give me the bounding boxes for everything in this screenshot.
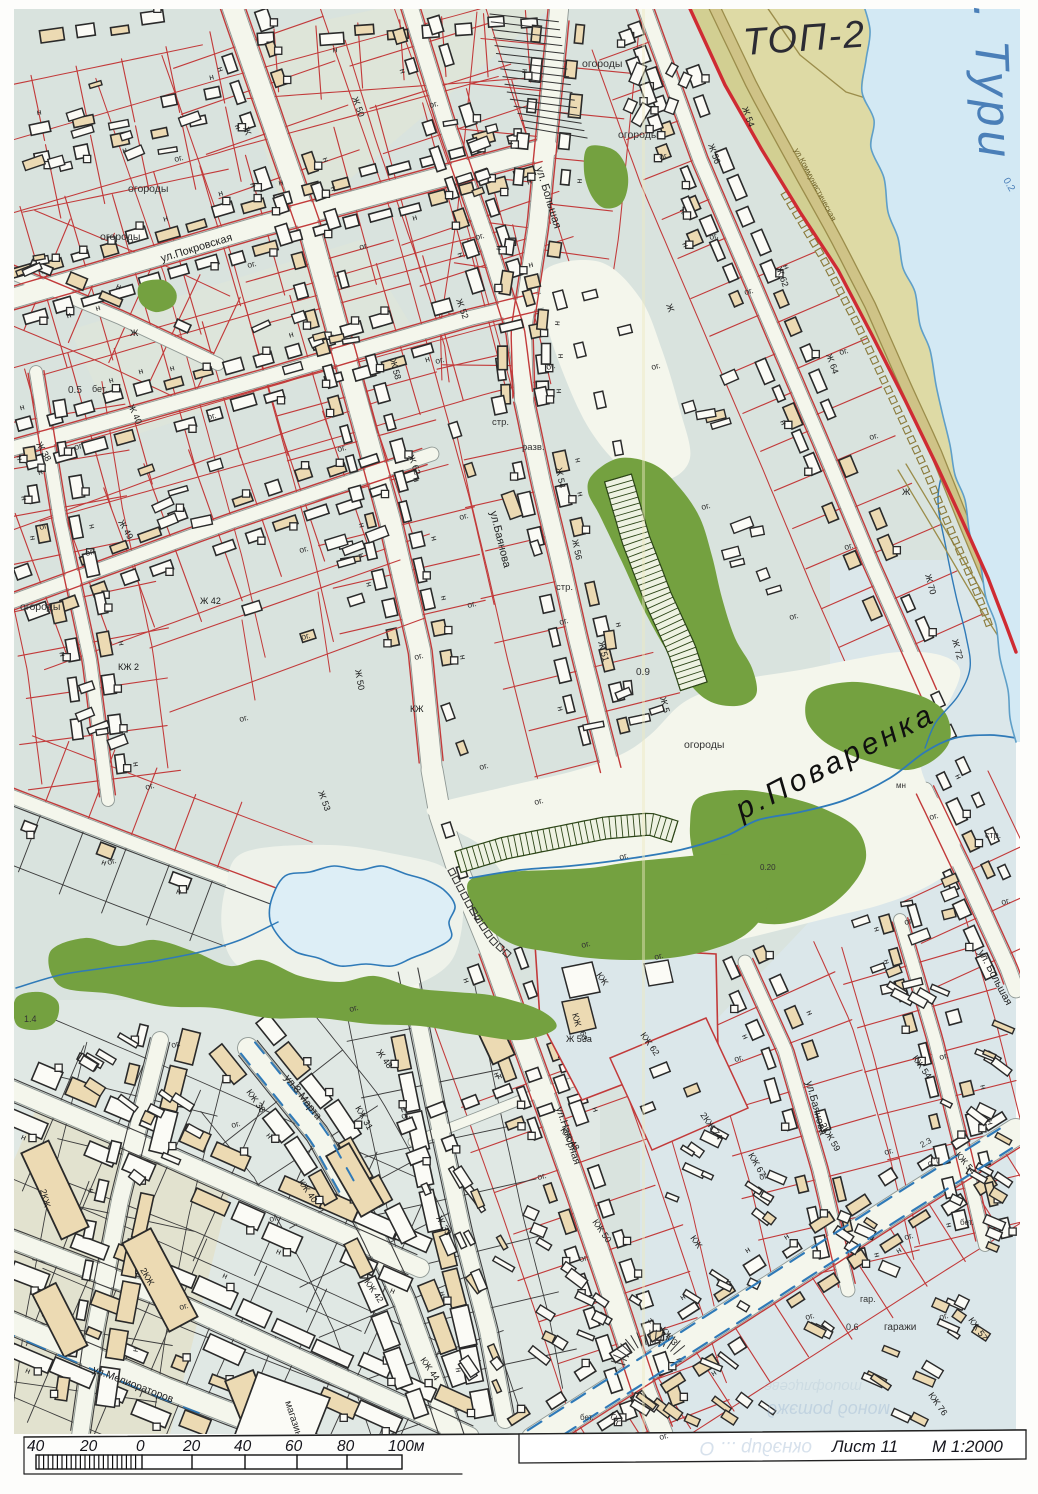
svg-text:0.5: 0.5: [68, 385, 82, 396]
svg-text:мн: мн: [896, 781, 906, 790]
svg-text:огороды: огороды: [582, 58, 622, 70]
svg-text:огороды: огороды: [684, 739, 724, 751]
svg-text:разв.: разв.: [522, 442, 545, 453]
svg-text:гаражи: гаражи: [884, 1322, 916, 1333]
svg-text:стр.: стр.: [985, 830, 1001, 840]
svg-text:20: 20: [182, 1438, 201, 1455]
svg-text:1.4: 1.4: [24, 1014, 37, 1024]
svg-text:бет.: бет.: [960, 1218, 974, 1227]
svg-text:гар.: гар.: [860, 1294, 876, 1304]
svg-text:М 1:2000: М 1:2000: [932, 1437, 1003, 1456]
svg-text:огороды: огороды: [128, 183, 168, 195]
svg-text:бет.: бет.: [92, 384, 107, 394]
svg-text:бет.: бет.: [580, 1413, 594, 1422]
svg-text:0.20: 0.20: [760, 863, 776, 872]
svg-text:огороды: огороды: [618, 129, 658, 141]
svg-text:ТОП-2: ТОП-2: [742, 13, 868, 63]
svg-text:80: 80: [337, 1438, 355, 1455]
svg-text:0: 0: [136, 1438, 145, 1455]
svg-text:40: 40: [27, 1438, 45, 1455]
svg-text:огороды: огороды: [20, 601, 60, 613]
svg-text:КЖ 2: КЖ 2: [118, 662, 139, 672]
svg-text:КЖ: КЖ: [410, 704, 424, 714]
svg-text:Лист 11: Лист 11: [831, 1437, 898, 1456]
svg-text:Ж 53а: Ж 53а: [566, 1034, 592, 1044]
svg-text:20: 20: [79, 1438, 98, 1455]
svg-text:стр.: стр.: [492, 417, 509, 428]
svg-text:огороды: огороды: [100, 231, 140, 243]
svg-text:. Тури: . Тури: [963, 5, 1021, 163]
svg-text:н: н: [554, 389, 564, 394]
svg-text:монод ротэжд: монод ротэжд: [767, 1400, 890, 1420]
svg-text:тоиофлцсеве: тоиофлцсеве: [764, 1378, 862, 1395]
svg-text:0.6: 0.6: [846, 1322, 859, 1332]
svg-text:Ж: Ж: [902, 487, 911, 497]
svg-text:100м: 100м: [388, 1438, 425, 1455]
svg-text:40: 40: [234, 1438, 252, 1455]
svg-text:0.9: 0.9: [636, 667, 650, 678]
svg-text:стр.: стр.: [556, 582, 573, 593]
svg-text:окнэдир ... О: окнэдир ... О: [700, 1437, 812, 1458]
svg-text:Ж: Ж: [130, 328, 139, 338]
svg-text:н: н: [556, 354, 566, 359]
svg-text:60: 60: [285, 1438, 303, 1455]
svg-text:Ж 42: Ж 42: [200, 596, 221, 606]
